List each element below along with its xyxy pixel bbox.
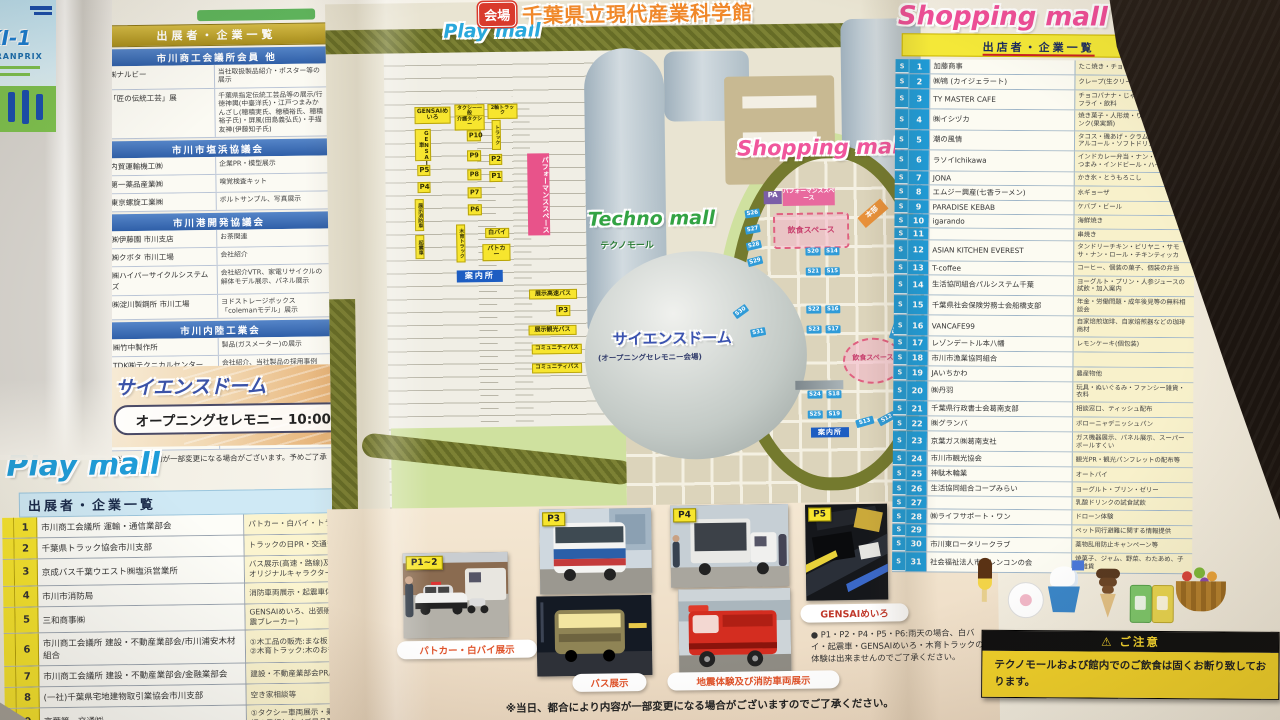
cut-column bbox=[2, 518, 14, 538]
map-label-sightseeing-bus: 展示観光バス bbox=[528, 325, 576, 336]
vendor-name: TY MASTER CAFE bbox=[929, 89, 1074, 109]
stall-number: 18 bbox=[906, 351, 927, 365]
vendor-name bbox=[926, 497, 1071, 510]
vendor-name: igarando bbox=[928, 214, 1073, 228]
exhibitor-name: ㈱ナルビー bbox=[106, 65, 215, 89]
stall-letter: S bbox=[894, 336, 907, 350]
map-label-p2: P2 bbox=[489, 154, 502, 166]
vendor-goods: 焼菓子、ジャム、野菜、わたあめ、子供雑貨 bbox=[1071, 553, 1192, 573]
vendor-name: 京葉ガス㈱葛南支社 bbox=[927, 431, 1072, 451]
stall-number: 20 bbox=[906, 381, 927, 401]
vendor-name: 市川市観光協会 bbox=[927, 452, 1072, 467]
stall-letter: S bbox=[893, 381, 906, 400]
shop-row: S 6 ラソイIchikawa インドカレー弁当・ナン・インド風おつまみ・インド… bbox=[895, 150, 1195, 172]
stall-letter: S bbox=[892, 524, 905, 536]
science-dome-map-label: サイエンスドーム bbox=[613, 327, 732, 350]
vendor-name bbox=[928, 228, 1073, 241]
stall-number: 4 bbox=[908, 110, 929, 130]
booth-number: 8 bbox=[16, 688, 39, 708]
exhibitor-name: ㈱クボタ 市川工場 bbox=[108, 248, 217, 267]
cut-off-title-decoration bbox=[197, 9, 315, 22]
vendor-name: 生活協同組合コープみらい bbox=[927, 482, 1072, 497]
stall-number: 3 bbox=[908, 89, 929, 109]
stall-number: 24 bbox=[906, 452, 927, 466]
booth-number: 4 bbox=[15, 586, 38, 606]
photo-badge-p12: P1~2 bbox=[406, 556, 443, 571]
map-label: 展示消防車 bbox=[415, 199, 425, 231]
stall-letter: S bbox=[893, 482, 906, 496]
exhibitor-row: ㈱ナルビー 当社取扱製品紹介・ポスター等の展示 bbox=[106, 63, 328, 90]
flyer-decoration bbox=[30, 6, 52, 10]
vendor-name: JAいちかわ bbox=[927, 366, 1072, 381]
vendor-goods: 観光PR・観光パンフレットの配布等 bbox=[1072, 453, 1193, 468]
snack-bag-yellow-illustration bbox=[1152, 585, 1174, 623]
exhibitor-desc: 会社紹介 bbox=[217, 247, 330, 266]
cut-column bbox=[4, 688, 16, 708]
exhibitor-name: 東京螺旋工業㈱ bbox=[108, 193, 217, 212]
soft-cream-illustration bbox=[1092, 569, 1124, 621]
vendor-goods: 相談窓口、ティッシュ配布 bbox=[1072, 402, 1193, 417]
techno-mall-jp-label: テクノモール bbox=[600, 238, 654, 252]
venue-name: 千葉県立現代産業科学館 bbox=[522, 0, 753, 29]
stall-letter: S bbox=[893, 452, 906, 466]
exhibitor-name: 内貿運輸機工㈱ bbox=[107, 157, 216, 176]
exhibitor-name: ㈱竹中製作所 bbox=[110, 338, 219, 357]
stall-letter: S bbox=[894, 295, 907, 314]
map-label-p4: P4 bbox=[417, 182, 430, 194]
vendor-name: PARADISE KEBAB bbox=[929, 200, 1074, 214]
vendor-goods: オートバイ bbox=[1072, 468, 1193, 483]
company-name: 市川商工会議所 運輸・通信業部会 bbox=[37, 515, 244, 538]
map-label-p1: P1 bbox=[489, 171, 502, 183]
exhibitor-desc: 企業PR・模型展示 bbox=[216, 156, 329, 175]
company-name: 市川市消防局 bbox=[38, 583, 245, 606]
stall-number: 15 bbox=[907, 295, 928, 315]
map-label: トラック bbox=[492, 120, 502, 150]
venue-badge: 会場 bbox=[478, 2, 516, 28]
shop-row: S 15 千葉県社会保険労務士会船橋支部 年金・労働問題・成年後見等の無料相談会 bbox=[894, 295, 1194, 317]
exhibitor-name: ㈱ハイパーサイクルシステムズ bbox=[109, 266, 218, 296]
stall-number: 27 bbox=[905, 497, 926, 509]
stall-number: 2 bbox=[908, 74, 929, 88]
map-label-p6: P6 bbox=[468, 204, 482, 215]
stall-marker: S15 bbox=[825, 267, 840, 275]
rain-note: ● P1・P2・P4・P5・P6:雨天の場合、白バイ・起震車・GENSAIめいろ… bbox=[811, 626, 991, 665]
stall-letter: S bbox=[893, 401, 906, 415]
vendor-name: 千葉県行政書士会葛南支部 bbox=[927, 401, 1072, 416]
map-label: 2軸トラック bbox=[487, 104, 517, 119]
map-label-p5: P5 bbox=[417, 165, 430, 177]
cut-column bbox=[3, 560, 15, 586]
stall-number: 6 bbox=[908, 150, 929, 170]
flyer-decoration bbox=[34, 12, 52, 15]
map-label-p10: P10 bbox=[467, 130, 481, 141]
shop-row: S 31 社会福祉法人市川レンコンの会 焼菓子、ジャム、野菜、わたあめ、子供雑貨 bbox=[892, 552, 1192, 574]
exhibitor-desc: 製品(ガスメーター)の展示 bbox=[219, 337, 332, 356]
strip-disclaimer: ※当日、都合により内容が一部変更になる場合がございますのでご了承ください。 bbox=[430, 694, 970, 717]
performance-space-label: パフォーマンススペース bbox=[783, 188, 835, 206]
event-pamphlet: 出展者・企業一覧 市川商工会議所会員 他 ㈱ナルビー 当社取扱製品紹介・ポスター… bbox=[0, 0, 1280, 720]
stall-marker: S23 bbox=[807, 325, 822, 333]
vendor-goods: 玩具・ぬいぐるみ・ファンシー雑貨・衣料 bbox=[1072, 382, 1193, 402]
stall-number: 21 bbox=[906, 401, 927, 415]
pa-label: PA bbox=[764, 191, 782, 204]
vendor-name: 市川市漁業協同組合 bbox=[927, 351, 1072, 366]
stall-letter: S bbox=[894, 214, 907, 227]
stall-letter: S bbox=[893, 431, 906, 450]
exhibitor-desc: 千葉県指定伝統工芸品等の展示/行徳神輿(中臺洋氏)・江戸つまみかんざし(穂積実氏… bbox=[215, 87, 329, 137]
flyer-title: KI-1 bbox=[0, 26, 31, 50]
warning-icon: ⚠ bbox=[1101, 635, 1113, 649]
vendor-name: 潮の風情 bbox=[929, 130, 1074, 150]
map-label-highway-bus: 展示高速バス bbox=[529, 289, 577, 300]
vendor-name: 生活協同組合パルシステム千葉 bbox=[928, 275, 1073, 295]
vendor-goods bbox=[1072, 352, 1193, 367]
flyer-subtitle: GRANPRIX bbox=[0, 52, 43, 61]
stall-letter: S bbox=[895, 150, 908, 169]
eating-space: 飲食スペース bbox=[773, 212, 849, 249]
paper-shadow bbox=[0, 380, 112, 460]
stall-number: 23 bbox=[906, 431, 927, 451]
stall-letter: S bbox=[895, 130, 908, 149]
map-label: GENSAI車 bbox=[415, 129, 431, 161]
vendor-name: ㈱鴇 (カイジェラート) bbox=[929, 74, 1074, 89]
shop-row: S 23 京葉ガス㈱葛南支社 ガス機器展示、パネル展示、スーパーボールすくい bbox=[893, 431, 1193, 453]
shop-row: S 16 VANCAFE99 自家焙煎珈琲、自家焙煎器などの珈琲商材 bbox=[894, 315, 1194, 337]
vendor-name: ㈱イシヅカ bbox=[929, 110, 1074, 130]
stall-letter: S bbox=[895, 171, 908, 184]
stall-marker: S24 bbox=[807, 390, 822, 398]
exhibitor-desc: お茶関連 bbox=[217, 229, 330, 248]
booth-number: 5 bbox=[15, 607, 38, 633]
stall-letter: S bbox=[893, 467, 906, 481]
shopping-mall-map-label: Shopping mall bbox=[737, 134, 907, 160]
info-desk-label: 案内所 bbox=[811, 427, 849, 438]
info-counter bbox=[795, 380, 843, 390]
map-label: 介護タクシー bbox=[455, 115, 485, 130]
caution-box: ⚠ ご注意 テクノモールおよび館内でのご飲食は固くお断り致しております。 bbox=[981, 630, 1279, 700]
booth-number: 2 bbox=[14, 538, 37, 558]
stall-number: 1 bbox=[908, 59, 929, 73]
exhibitor-row: ㈱ハイパーサイクルシステムズ 会社紹介VTR、家電リサイクルの解体モデル展示、パ… bbox=[109, 265, 331, 297]
cut-column bbox=[3, 607, 15, 633]
stall-number: 9 bbox=[908, 200, 929, 213]
photo-caption-police: パトカー・白バイ展示 bbox=[397, 639, 537, 659]
company-name: 市川商工会議所 建設・不動産業部会/金融業部会 bbox=[39, 664, 246, 687]
stall-marker: S14 bbox=[824, 247, 839, 255]
vendor-goods: レモンケーキ(個包装) bbox=[1073, 337, 1194, 352]
stall-number: 16 bbox=[907, 316, 928, 336]
site-map: サイエンスドーム (オープニングセレモニー会場) Play mall Techn… bbox=[325, 0, 927, 516]
vendor-name: 神駄木輪業 bbox=[927, 467, 1072, 482]
exhibitor-list-title: 出展者・企業一覧 bbox=[105, 22, 327, 47]
building-detail bbox=[742, 96, 816, 109]
stall-letter: S bbox=[893, 351, 906, 365]
stall-letter: S bbox=[892, 497, 905, 509]
stall-marker: S17 bbox=[826, 325, 841, 333]
company-name: 市川商工会議所 建設・不動産業部会/市川浦安木材組合 bbox=[39, 631, 246, 666]
stall-letter: S bbox=[894, 261, 907, 274]
stall-marker: S21 bbox=[806, 267, 821, 275]
map-label-motorcycle: 白バイ bbox=[485, 228, 509, 239]
stall-letter: S bbox=[895, 59, 908, 73]
vendor-name: VANCAFE99 bbox=[928, 316, 1073, 336]
vendor-name: 市川東ロータリークラブ bbox=[926, 537, 1071, 552]
vendor-goods: 年金・労働問題・成年後見等の無料相談会 bbox=[1073, 296, 1194, 316]
stall-letter: S bbox=[892, 552, 905, 571]
stall-letter: S bbox=[894, 315, 907, 334]
map-label-community-bus: コミュニティバス bbox=[532, 363, 582, 373]
exhibitor-row: 東京螺旋工業㈱ ボルトサンプル、写真展示 bbox=[108, 192, 330, 213]
stall-letter: S bbox=[895, 74, 908, 88]
vendor-goods: ヨーグルト・プリン・ゼリー bbox=[1072, 483, 1193, 498]
hedge-left bbox=[329, 299, 358, 516]
vendor-name: エムジー興産(七香ラーメン) bbox=[929, 185, 1074, 200]
opening-ceremony-label: オープニングセレモニー 10:00 bbox=[114, 402, 353, 435]
stall-letter: S bbox=[895, 185, 908, 199]
vendor-goods: 薬物乱用防止キャンペーン等 bbox=[1071, 538, 1192, 553]
cut-column bbox=[4, 667, 16, 687]
vendor-goods: 串焼き bbox=[1073, 229, 1194, 242]
vendor-name: レゾンデートル本八幡 bbox=[928, 336, 1073, 351]
stall-letter: S bbox=[894, 240, 907, 259]
stall-number: 29 bbox=[905, 524, 926, 536]
company-name: (一社)千葉県宅地建物取引業協会市川支部 bbox=[39, 685, 246, 708]
shop-row: S 14 生活協同組合パルシステム千葉 ヨーグルト・プリン・人参ジュースの試飲・… bbox=[894, 275, 1194, 297]
vendor-goods: ヨーグルト・プリン・人参ジュースの試飲・加入案内 bbox=[1073, 276, 1194, 296]
booth-number: 6 bbox=[16, 634, 39, 666]
map-label-p3: P3 bbox=[556, 305, 570, 317]
stall-number: 14 bbox=[907, 275, 928, 295]
vendor-goods: 農産物他 bbox=[1072, 367, 1193, 382]
booth-number: 7 bbox=[16, 667, 39, 687]
stall-letter: S bbox=[892, 537, 905, 551]
exhibitor-desc: ヨドストレージボックス「colemanモデル」展示 bbox=[218, 294, 331, 319]
vendor-goods: 乳酸ドリンクの試食試飲 bbox=[1071, 498, 1192, 511]
company-name: 三和商事㈱ bbox=[38, 604, 245, 633]
stall-number: 31 bbox=[905, 552, 926, 572]
stall-number: 7 bbox=[908, 171, 929, 184]
photo-caption-fire: 地震体験及び消防車両展示 bbox=[667, 670, 839, 690]
map-label-community-bus: コミュニティバス bbox=[532, 344, 582, 354]
exhibitor-name: 第一薬品産業㈱ bbox=[107, 175, 216, 194]
shop-list-header-text: 出店者・企業一覧 bbox=[983, 41, 1095, 57]
photo-caption-bus: バス展示 bbox=[572, 673, 646, 692]
vegetable-basket-illustration bbox=[1176, 571, 1228, 619]
stall-number: 28 bbox=[905, 509, 926, 523]
exhibitor-desc: ボルトサンプル、写真展示 bbox=[217, 192, 330, 211]
company-name: 京葉第一交通㈱ bbox=[40, 706, 247, 720]
caution-body: テクノモールおよび館内でのご飲食は固くお断り致しております。 bbox=[982, 651, 1278, 699]
stall-letter: S bbox=[893, 416, 906, 430]
stall-number: 12 bbox=[907, 240, 928, 260]
flyer-decoration bbox=[0, 66, 40, 69]
stall-letter: S bbox=[895, 110, 908, 129]
vendor-name: ㈱ライフサポート・ワン bbox=[926, 510, 1071, 525]
stall-number: 30 bbox=[905, 537, 926, 551]
photo-caption-gensai: GENSAIめいろ bbox=[800, 603, 908, 623]
photo-badge-p3: P3 bbox=[542, 512, 565, 526]
vendor-name: JONA bbox=[929, 171, 1074, 185]
science-dome-map-sublabel: (オープニングセレモニー会場) bbox=[598, 351, 702, 363]
company-name: 京成バス千葉ウエスト㈱塩浜営業所 bbox=[38, 557, 245, 586]
stall-number: 5 bbox=[908, 130, 929, 150]
caution-header: ⚠ ご注意 bbox=[982, 631, 1278, 653]
exhibitor-row: 「匠の伝統工芸」展 千葉県指定伝統工芸品等の展示/行徳神輿(中臺洋氏)・江戸つま… bbox=[106, 87, 329, 140]
booth-number: 1 bbox=[14, 517, 37, 537]
exhibitor-desc: 嗅覚検査キット bbox=[216, 174, 329, 193]
bus-photo-night bbox=[536, 595, 652, 677]
fan-illustration bbox=[1008, 582, 1044, 618]
cut-column bbox=[2, 539, 14, 559]
vendor-goods: 自家焙煎珈琲、自家焙煎器などの珈琲商材 bbox=[1073, 317, 1194, 337]
pamphlet-photo: 出展者・企業一覧 市川商工会議所会員 他 ㈱ナルビー 当社取扱製品紹介・ポスター… bbox=[0, 0, 1280, 720]
stall-number: 25 bbox=[906, 467, 927, 481]
stall-marker: S16 bbox=[825, 305, 840, 313]
exhibitor-section: 市川港開発協議会 ㈱伊藤園 市川支店 お茶関連 ㈱クボタ 市川工場 会社紹介 ㈱… bbox=[108, 212, 331, 321]
exhibitor-desc: 当社取扱製品紹介・ポスター等の展示 bbox=[215, 63, 328, 88]
photo-badge-p5: P5 bbox=[808, 507, 831, 521]
exhibitor-name: ㈱伊藤園 市川支店 bbox=[108, 230, 217, 249]
exhibitor-section: 市川商工会議所会員 他 ㈱ナルビー 当社取扱製品紹介・ポスター等の展示 「匠の伝… bbox=[106, 46, 329, 139]
stall-number: 10 bbox=[907, 214, 928, 227]
vendor-name: ASIAN KITCHEN EVEREST bbox=[928, 241, 1073, 261]
stall-letter: S bbox=[894, 228, 907, 240]
stall-number: 19 bbox=[906, 366, 927, 380]
stall-number: 17 bbox=[907, 336, 928, 350]
stall-number: 22 bbox=[906, 416, 927, 430]
stall-letter: S bbox=[893, 366, 906, 380]
stall-marker: S25 bbox=[808, 410, 823, 418]
flyer-green-band bbox=[0, 86, 56, 132]
map-label-p9: P9 bbox=[467, 150, 481, 161]
stall-number: 11 bbox=[907, 228, 928, 240]
stall-marker: S20 bbox=[805, 247, 820, 255]
flyer-decoration bbox=[0, 73, 30, 76]
vendor-goods: コーヒー、個装の菓子、個装の弁当 bbox=[1073, 262, 1194, 276]
map-label: 木育トラック bbox=[456, 224, 466, 262]
venue-header: 会場 千葉県立現代産業科学館 bbox=[478, 0, 753, 29]
ki1-flyer: KI-1 GRANPRIX bbox=[0, 0, 56, 132]
vendor-name: ラソイIchikawa bbox=[929, 151, 1074, 171]
snack-bag-green-illustration bbox=[1130, 585, 1152, 623]
map-label: 起震車 bbox=[415, 235, 425, 259]
info-desk-label: 案内所 bbox=[457, 270, 503, 282]
exhibitor-name: 「匠の伝統工芸」展 bbox=[106, 89, 216, 139]
stall-marker: S18 bbox=[826, 390, 841, 398]
vendor-goods: タンドリーチキン・ビリヤニ・サモサ・ナン・ロール・チキンティッカ bbox=[1073, 242, 1194, 262]
map-label-p8: P8 bbox=[467, 169, 481, 180]
stall-letter: S bbox=[892, 509, 905, 523]
stall-letter: S bbox=[894, 275, 907, 294]
caution-title: ご注意 bbox=[1119, 635, 1160, 649]
vendor-goods: ボローニャデニッシュパン bbox=[1072, 417, 1193, 432]
stall-number: 26 bbox=[906, 482, 927, 496]
fire-engine-photo bbox=[678, 588, 791, 678]
booth-number: 3 bbox=[15, 559, 38, 585]
stall-letter: S bbox=[895, 89, 908, 108]
vendor-name bbox=[926, 525, 1071, 538]
exhibitor-name: ㈱淀川製鋼所 市川工場 bbox=[109, 295, 218, 319]
cut-column bbox=[3, 586, 15, 606]
exhibitor-row: ㈱淀川製鋼所 市川工場 ヨドストレージボックス「colemanモデル」展示 bbox=[109, 294, 331, 321]
vendor-name: ㈱グランバ bbox=[927, 416, 1072, 431]
vendor-name: 加藤商事 bbox=[929, 59, 1074, 74]
stall-number: 8 bbox=[908, 185, 929, 199]
choco-banana-illustration bbox=[978, 558, 992, 602]
exhibitor-desc: 会社紹介VTR、家電リサイクルの解体モデル展示、パネル展示 bbox=[218, 265, 331, 295]
company-name: 千葉県トラック協会市川支部 bbox=[37, 536, 244, 559]
stall-number: 13 bbox=[907, 261, 928, 274]
vendor-goods: ペット同行避難に関する情報提供 bbox=[1071, 526, 1192, 539]
stall-marker: S19 bbox=[827, 410, 842, 418]
shop-row: S 12 ASIAN KITCHEN EVEREST タンドリーチキン・ビリヤニ… bbox=[894, 240, 1194, 262]
exhibitor-section: 市川市塩浜協議会 内貿運輸機工㈱ 企業PR・模型展示 第一薬品産業㈱ 嗅覚検査キ… bbox=[107, 139, 330, 213]
map-label-p7: P7 bbox=[468, 187, 482, 198]
performance-space-label: パフォーマンススペース bbox=[527, 153, 550, 235]
stall-letter: S bbox=[895, 200, 908, 213]
vendor-name: ㈱丹羽 bbox=[927, 381, 1072, 401]
vendor-name: T-coffee bbox=[928, 261, 1073, 275]
map-label-police-car: パトカー bbox=[482, 244, 510, 261]
vendor-goods: ガス機器展示、パネル展示、スーパーボールすくい bbox=[1072, 432, 1193, 452]
science-dome-title: サイエンスドーム bbox=[115, 371, 266, 400]
vendor-name: 千葉県社会保険労務士会船橋支部 bbox=[928, 295, 1073, 315]
techno-mall-map-label: Techno mall bbox=[588, 207, 715, 231]
shaved-ice-illustration bbox=[1044, 564, 1084, 616]
shop-row: S 20 ㈱丹羽 玩具・ぬいぐるみ・ファンシー雑貨・衣料 bbox=[893, 381, 1193, 403]
cut-column bbox=[4, 634, 16, 666]
stall-marker: S22 bbox=[806, 305, 821, 313]
photo-badge-p4: P4 bbox=[673, 508, 696, 522]
map-label-gensai-maze: GENSAIめいろ bbox=[414, 107, 450, 124]
vendor-goods: ドローン体験 bbox=[1071, 511, 1192, 526]
